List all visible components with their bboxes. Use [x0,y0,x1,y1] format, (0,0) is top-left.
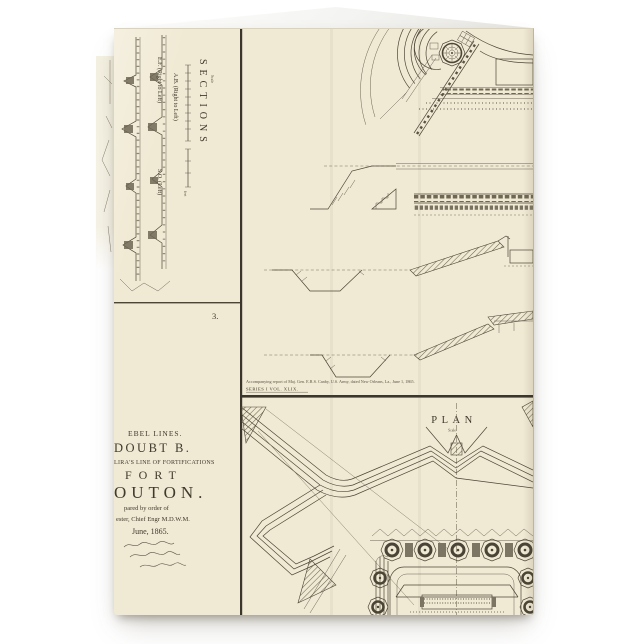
gun-platform [381,539,403,561]
signature-scribble [124,541,186,567]
fold-strip-marks [96,56,114,270]
title-line-prepared-by: pared by order of [124,505,170,512]
cross-section-3 [264,311,533,377]
gun-platform [514,539,533,561]
gun-platform [368,597,388,615]
sections-panel: E.F. (Right to Left) S.O. (Left) A.B. (R… [120,35,214,291]
plan-title: PLAN [431,415,476,426]
plan-panel: PLAN Scale [241,401,533,615]
card-left-fold-strip [96,56,114,270]
section-label-so: S.O. (Left) [156,169,163,195]
section-profile-strip [122,37,140,281]
gun-platform [447,539,469,561]
cross-section-1 [310,164,533,216]
gun-platform [518,568,533,588]
gun-platform [481,539,503,561]
section-label-ef: E.F. (Right to Left) [156,57,163,103]
paper-crease [418,29,421,615]
title-line-fortifications: LIRA'S LINE OF FORTIFICATIONS [114,460,215,466]
plan-fragment-top [361,29,533,136]
title-line-fort-name: OUTON. [114,483,207,502]
title-line-redoubt: DOUBT B. [114,441,191,455]
title-block: EBEL LINES. DOUBT B. LIRA'S LINE OF FORT… [114,429,215,567]
title-line-engineer: ester, Chief Engr M.D.W.M. [116,516,190,523]
sections-scale-label: Scale [210,75,214,84]
title-line-rebel-lines: EBEL LINES. [128,429,182,438]
parade-ground-buildings [390,567,521,615]
star-fort-outline [241,401,533,615]
rampart-crenellation [370,529,533,541]
section-label-ab: A.B. (Right to Left) [172,73,179,121]
section-fragment [120,279,170,291]
title-line-date: June, 1865. [132,527,169,536]
caption-series-line: SERIES I VOL. XLIX. [246,387,298,392]
road-curves [466,31,533,63]
scale-bar [185,65,191,187]
plate-number: 3. [212,311,218,321]
greeting-card-front[interactable]: 3. [114,28,534,615]
title-line-fort: FORT [125,468,183,482]
gun-platform [520,597,533,615]
cross-section-2 [264,236,533,291]
card-back-fold-edge [114,7,533,29]
gun-emplacement-row [368,539,533,615]
scale-feet-label: feet [183,191,187,196]
plan-scale-label: Scale [448,429,456,433]
map-plate: 3. [114,29,533,615]
paper-crease [330,29,333,615]
sections-title: SECTIONS [197,59,208,147]
product-mockup-scene: 3. [0,0,644,644]
